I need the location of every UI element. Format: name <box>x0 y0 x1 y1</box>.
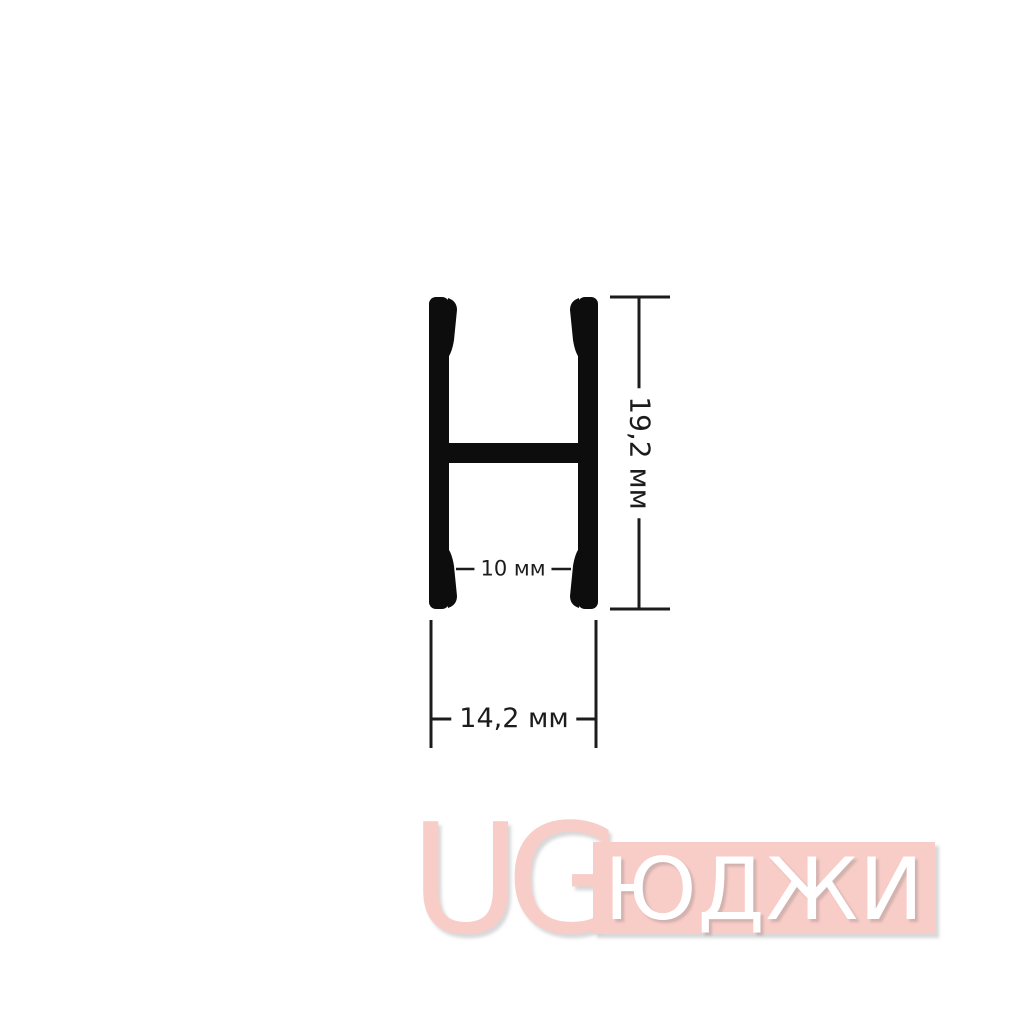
dimension-height-label: 19,2 мм <box>622 388 657 518</box>
dimension-overall-width-label: 14,2 мм <box>451 704 576 734</box>
dimension-inner-width-label: 10 мм <box>474 557 551 580</box>
product-drawing-canvas: 19,2 мм 10 мм 14,2 мм UG ЮДЖИ <box>0 0 1024 1024</box>
profile-crossbar <box>446 443 580 463</box>
h-profile-technical-drawing <box>0 0 1024 1024</box>
